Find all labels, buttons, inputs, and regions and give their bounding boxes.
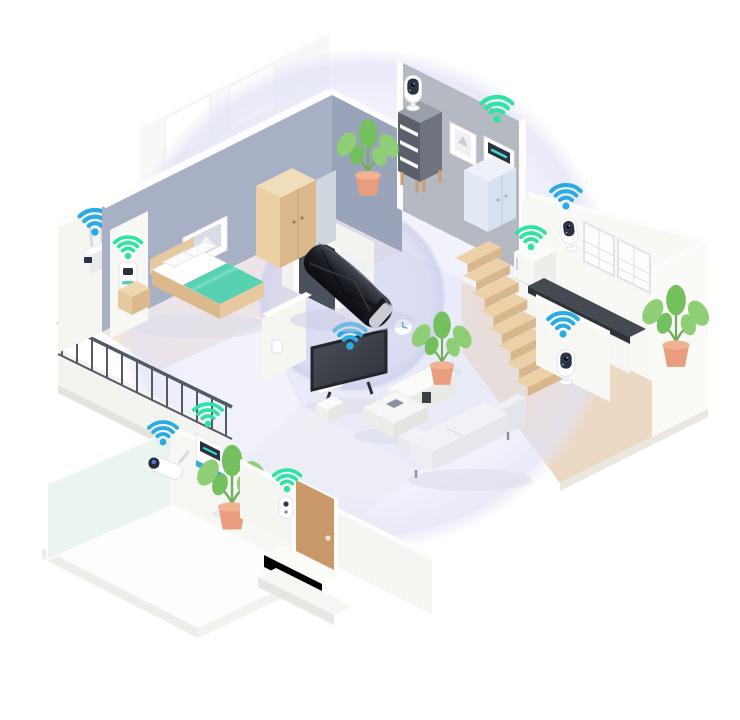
door-knob-icon — [325, 535, 330, 540]
smart-home-wifi-illustration — [0, 0, 740, 720]
wall-outlet-icon — [272, 340, 282, 353]
light-blue-cabinet — [464, 156, 516, 232]
kitchen-wall-se-return — [652, 244, 708, 437]
illustration-stage — [0, 0, 740, 720]
video-doorbell — [279, 497, 293, 518]
gray-cabinet — [316, 170, 336, 250]
